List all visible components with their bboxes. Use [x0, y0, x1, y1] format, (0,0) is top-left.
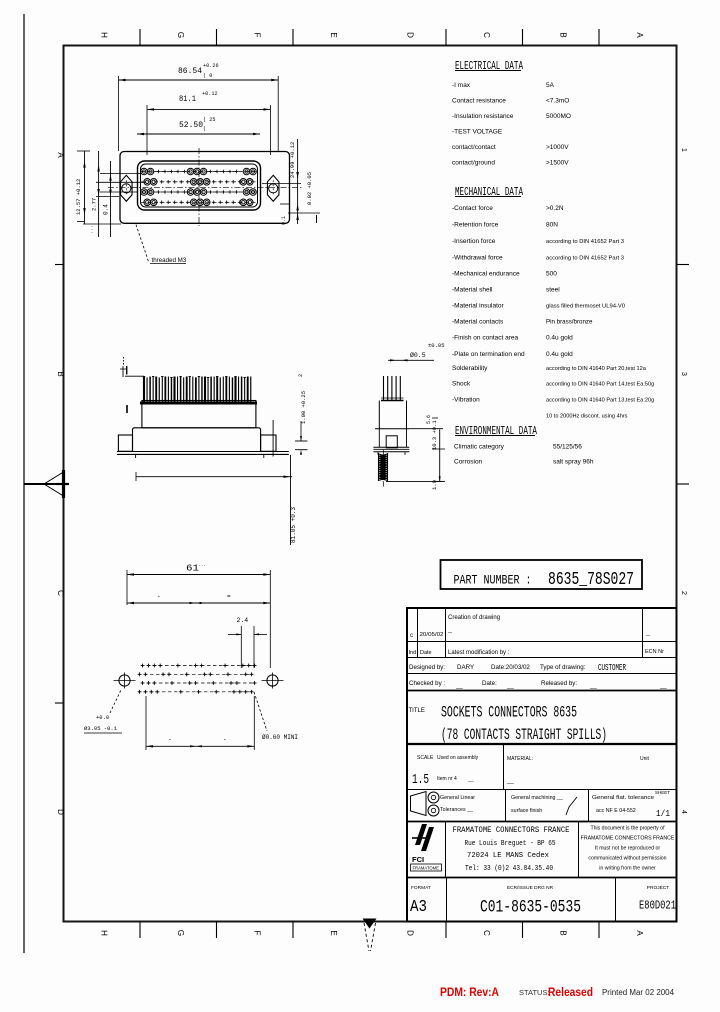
svg-text:General machining __: General machining __ — [511, 795, 563, 801]
svg-text:-Mechanical endurance: -Mechanical endurance — [452, 271, 520, 278]
svg-text:Unit: Unit — [640, 756, 650, 762]
svg-text:( 25: ( 25 — [203, 117, 215, 123]
svg-text:B: B — [56, 371, 65, 376]
svg-text:Type of drawing:: Type of drawing: — [540, 664, 586, 671]
svg-text:FRAMATOME CONNECTORS FRANCE: FRAMATOME CONNECTORS FRANCE — [581, 836, 675, 842]
svg-text:Date:20/03/02: Date:20/03/02 — [491, 664, 530, 671]
svg-text:C: C — [482, 32, 491, 38]
svg-text:500: 500 — [546, 271, 557, 278]
svg-text:>0.2N: >0.2N — [546, 205, 564, 212]
svg-text:G: G — [176, 930, 185, 936]
svg-text:80N: 80N — [546, 222, 558, 229]
svg-text:10.3 +0.1: 10.3 +0.1 — [431, 420, 438, 450]
svg-text:81.1: 81.1 — [179, 94, 196, 104]
svg-text:86.54: 86.54 — [178, 66, 202, 76]
svg-text:Ø0.60 MINI: Ø0.60 MINI — [262, 734, 298, 741]
svg-text:Tolerances __: Tolerances __ — [440, 807, 473, 813]
svg-text:±0.05: ±0.05 — [428, 342, 445, 349]
svg-text:SOCKETS CONNECTORS 8635: SOCKETS CONNECTORS 8635 — [441, 704, 577, 722]
svg-text:according to DIN 41640 Part 14: according to DIN 41640 Part 14,test Ea:5… — [546, 382, 654, 388]
svg-text:D: D — [406, 930, 415, 936]
svg-text:MECHANICAL DATA: MECHANICAL DATA — [455, 186, 523, 199]
svg-text:SHEET: SHEET — [655, 790, 670, 795]
svg-text:20/05/02: 20/05/02 — [420, 632, 444, 638]
svg-text:C: C — [482, 930, 491, 936]
svg-text:--: -- — [448, 630, 452, 636]
svg-text:(78 CONTACTS STRAIGHT SPILLS): (78 CONTACTS STRAIGHT SPILLS) — [441, 726, 607, 744]
svg-text:3: 3 — [680, 372, 687, 376]
svg-text:-Material shell: -Material shell — [452, 287, 493, 294]
svg-text:-Vibration: -Vibration — [452, 397, 480, 404]
svg-text:surface finish: surface finish — [511, 808, 542, 814]
svg-text:-Withdrawal force: -Withdrawal force — [452, 255, 503, 262]
svg-text:B: B — [559, 32, 568, 37]
svg-text:DARY: DARY — [457, 664, 474, 671]
svg-text:C: C — [56, 590, 65, 596]
svg-text:MATERIAL:: MATERIAL: — [507, 756, 533, 762]
svg-text:Released: Released — [548, 987, 593, 999]
svg-text:+0.0: +0.0 — [96, 714, 109, 721]
svg-text:G: G — [176, 32, 185, 38]
svg-text:ELECTRICAL DATA: ELECTRICAL DATA — [455, 60, 523, 73]
svg-text:C01-8635-0535: C01-8635-0535 — [480, 898, 581, 918]
svg-text:Climatic category: Climatic category — [454, 444, 505, 451]
svg-text:__: __ — [506, 778, 514, 784]
svg-text:D: D — [406, 32, 415, 38]
svg-text:=: = — [227, 593, 231, 600]
svg-text:55/125/56: 55/125/56 — [553, 444, 582, 451]
svg-text:...: ... — [198, 563, 206, 568]
svg-text:General Linear: General Linear — [440, 795, 475, 801]
svg-text:0.02 +0.05: 0.02 +0.05 — [306, 172, 313, 205]
svg-text:Rue Louis Breguet - BP 65: Rue Louis Breguet - BP 65 — [465, 840, 556, 848]
svg-text:__: __ — [467, 777, 474, 783]
svg-text:SCALE: SCALE — [417, 755, 434, 761]
svg-text:H: H — [100, 32, 109, 38]
svg-text:Date:: Date: — [482, 680, 497, 687]
svg-text:threaded M3: threaded M3 — [152, 257, 187, 264]
svg-text:24.99 +0.12: 24.99 +0.12 — [289, 142, 296, 178]
svg-text:E80D021: E80D021 — [639, 899, 676, 913]
svg-text:FRAMATOME: FRAMATOME — [413, 866, 440, 871]
svg-text:2.77: 2.77 — [91, 198, 98, 211]
svg-text:contact/ground: contact/ground — [452, 160, 495, 167]
svg-text:(: ( — [203, 126, 206, 132]
svg-text:E: E — [329, 930, 338, 935]
svg-text:__: __ — [589, 683, 597, 689]
svg-text:Shock: Shock — [452, 381, 471, 388]
svg-text:1: 1 — [680, 148, 687, 152]
svg-text:Used on assembly: Used on assembly — [437, 755, 479, 761]
svg-text:FRAMATOME CONNECTORS FRANCE: FRAMATOME CONNECTORS FRANCE — [453, 826, 570, 835]
svg-text:2: 2 — [680, 591, 687, 595]
svg-text:in writing from the owner: in writing from the owner — [599, 866, 656, 872]
svg-text:Ø0.5: Ø0.5 — [410, 351, 426, 359]
svg-text:-Retention force: -Retention force — [452, 222, 499, 229]
svg-text:Item nr 4: Item nr 4 — [437, 776, 457, 782]
svg-text:Latest modification by :: Latest modification by : — [448, 650, 510, 656]
svg-text:ENVIRONMENTAL DATA: ENVIRONMENTAL DATA — [455, 425, 537, 438]
svg-text:Checked by :: Checked by : — [409, 680, 445, 687]
svg-text:5000MO: 5000MO — [546, 113, 571, 120]
svg-text:-I max: -I max — [452, 82, 471, 89]
svg-text:<7.3mO: <7.3mO — [546, 98, 569, 105]
svg-text:0.1: 0.1 — [281, 216, 287, 225]
svg-text:glass filled thermoset UL94-V0: glass filled thermoset UL94-V0 — [546, 304, 625, 310]
svg-text:( 0: ( 0 — [203, 73, 212, 79]
svg-text:4: 4 — [680, 810, 687, 814]
svg-text:communicated without permissio: communicated without permission — [588, 856, 666, 862]
svg-text:12.57 +0.12: 12.57 +0.12 — [75, 179, 82, 215]
svg-text:acc NF E 04-552: acc NF E 04-552 — [596, 808, 636, 814]
svg-text:--: -- — [646, 633, 650, 639]
svg-text:>1500V: >1500V — [546, 160, 569, 167]
svg-text:72024 LE MANS Cedex: 72024 LE MANS Cedex — [467, 852, 549, 860]
svg-text:according to DIN 41640 Part 13: according to DIN 41640 Part 13,test Ea:2… — [546, 398, 654, 404]
svg-text:>1000V: >1000V — [546, 144, 569, 151]
svg-text:B: B — [559, 930, 568, 935]
svg-text:F: F — [253, 33, 262, 38]
svg-text:Tel: 33 (0)2 43.84.35.40: Tel: 33 (0)2 43.84.35.40 — [465, 865, 553, 873]
svg-text:__: __ — [659, 683, 667, 689]
svg-text:General flat. tolerance: General flat. tolerance — [592, 795, 654, 801]
svg-text:Creation of drawing: Creation of drawing — [448, 615, 500, 621]
svg-text:according to DIN 41640 Part 20: according to DIN 41640 Part 20,test 12a — [546, 366, 647, 372]
svg-text:PROJECT: PROJECT — [647, 885, 669, 891]
svg-text:5.6: 5.6 — [426, 415, 432, 424]
svg-text:2: 2 — [298, 374, 304, 377]
svg-text:This document is the property: This document is the property of — [590, 826, 665, 832]
svg-text:FORMAT: FORMAT — [411, 885, 431, 891]
svg-text:Released by:: Released by: — [541, 680, 577, 687]
svg-text:1.00 +0.25: 1.00 +0.25 — [300, 391, 307, 424]
svg-text:-Material contacts: -Material contacts — [452, 319, 504, 326]
svg-text:0.4u gold: 0.4u gold — [546, 351, 573, 358]
svg-text:ECR/ISSUE DRG NR: ECR/ISSUE DRG NR — [507, 885, 554, 891]
svg-text:0.4u gold: 0.4u gold — [546, 335, 573, 342]
svg-text:according to DIN 41652 Part 3: according to DIN 41652 Part 3 — [546, 256, 624, 262]
svg-text:Ind: Ind — [409, 650, 417, 656]
svg-text:-Contact force: -Contact force — [452, 205, 493, 212]
svg-text:according to DIN 41652 Part 3: according to DIN 41652 Part 3 — [546, 239, 624, 245]
svg-text:STATUS:: STATUS: — [519, 988, 550, 997]
svg-text:Printed Mar 02 2004: Printed Mar 02 2004 — [602, 988, 675, 997]
svg-text:+0.26: +0.26 — [203, 63, 219, 69]
svg-text:PART NUMBER :: PART NUMBER : — [454, 573, 532, 588]
svg-text:salt spray 96h: salt spray 96h — [553, 459, 594, 466]
svg-text:It must not be reproduced or: It must not be reproduced or — [595, 846, 660, 852]
svg-text:__: __ — [455, 683, 463, 689]
svg-text:ECN Nr: ECN Nr — [645, 649, 664, 655]
svg-text:F: F — [253, 931, 262, 936]
svg-text:Solderability: Solderability — [452, 365, 488, 372]
svg-text:c: c — [410, 633, 413, 639]
svg-text:A3: A3 — [410, 898, 427, 917]
svg-text:D: D — [56, 809, 65, 815]
svg-text:-: - — [168, 736, 172, 743]
svg-text:Date: Date — [420, 650, 432, 656]
svg-text:1.0: 1.0 — [431, 480, 438, 490]
svg-text:81.05 +0.3: 81.05 +0.3 — [290, 507, 297, 543]
svg-text:Corrosion: Corrosion — [454, 459, 483, 466]
svg-text:A: A — [635, 32, 644, 38]
svg-text:FCI: FCI — [412, 855, 424, 864]
svg-text:E: E — [329, 32, 338, 37]
svg-text:A: A — [56, 152, 65, 158]
svg-text:Pin brass/bronze: Pin brass/bronze — [546, 319, 593, 326]
svg-text:2.4: 2.4 — [237, 617, 249, 624]
svg-text:-Finish on contact area: -Finish on contact area — [452, 335, 519, 342]
svg-text:8635_78S027: 8635_78S027 — [548, 570, 634, 590]
svg-text:-: - — [223, 736, 227, 743]
svg-text:-Insertion force: -Insertion force — [452, 238, 496, 245]
svg-text:Designed by:: Designed by: — [409, 664, 445, 671]
svg-text:__: __ — [506, 683, 514, 689]
svg-text:52.50: 52.50 — [179, 120, 203, 130]
svg-text:-Insulation resistance: -Insulation resistance — [452, 113, 514, 120]
svg-text:5A: 5A — [546, 82, 555, 89]
svg-text:Ø3.05 -0.1: Ø3.05 -0.1 — [84, 725, 118, 732]
svg-text:contact/contact: contact/contact — [452, 144, 496, 151]
svg-text:1.5: 1.5 — [412, 773, 429, 788]
svg-text:CUSTOMER: CUSTOMER — [598, 662, 626, 673]
svg-text:-Material insulator: -Material insulator — [452, 303, 504, 310]
svg-text:Contact resistance: Contact resistance — [452, 98, 506, 105]
svg-text:0.4: 0.4 — [103, 204, 110, 215]
svg-text:H: H — [100, 930, 109, 936]
svg-text:TITLE: TITLE — [409, 708, 425, 714]
svg-text:-TEST VOLTAGE: -TEST VOLTAGE — [452, 129, 503, 136]
svg-text:+0.12: +0.12 — [202, 91, 218, 97]
svg-text:-: - — [157, 593, 161, 600]
svg-text:-Plate on termination end: -Plate on termination end — [452, 351, 525, 358]
svg-text:steel: steel — [546, 287, 560, 294]
svg-text:1/1: 1/1 — [656, 809, 670, 819]
svg-text:...: ... — [89, 225, 95, 234]
svg-text:A: A — [635, 930, 644, 936]
svg-text:10 to 2000Hz discont. using 4h: 10 to 2000Hz discont. using 4hrs — [546, 414, 628, 420]
svg-text:PDM: Rev:A: PDM: Rev:A — [440, 987, 499, 999]
